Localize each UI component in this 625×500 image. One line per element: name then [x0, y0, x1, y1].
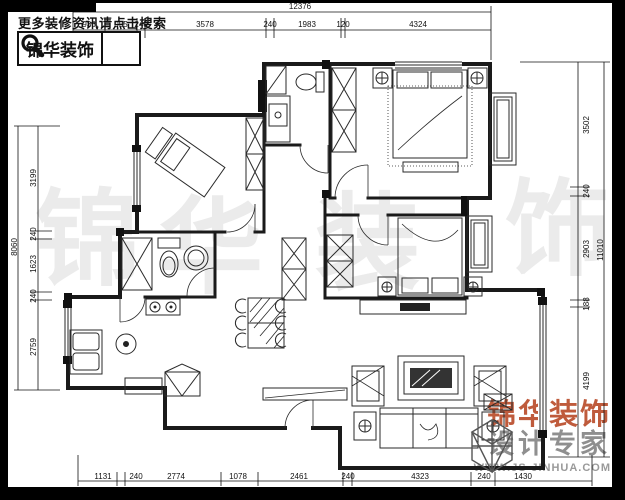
dim-bottom-seg: 1078 — [229, 472, 247, 481]
dim-left-seg: 1623 — [29, 255, 38, 273]
bathroom-left-fixtures — [122, 238, 208, 290]
search-icon[interactable] — [103, 33, 139, 64]
dim-left-seg: 3199 — [29, 169, 38, 187]
dim-top-total: 12376 — [289, 2, 312, 11]
dim-bottom-seg: 240 — [129, 472, 143, 481]
dim-right-seg: 4199 — [582, 372, 591, 390]
dim-right-seg: 2903 — [582, 240, 591, 258]
dim-right-seg: 188 — [582, 297, 591, 311]
dim-top-seg: 240 — [263, 20, 277, 29]
bay-window-top — [490, 93, 516, 165]
bedroom-middle-furniture — [327, 218, 482, 296]
brand-search-box[interactable]: 锦华装饰 — [17, 31, 141, 66]
dim-bottom-seg: 240 — [477, 472, 491, 481]
dimension-right: 11010 3502 240 2903 188 4199 — [520, 62, 610, 457]
dim-left-seg: 240 — [29, 289, 38, 303]
dim-bottom-seg: 2774 — [167, 472, 185, 481]
dim-bottom-seg: 1131 — [94, 472, 112, 481]
dim-bottom-seg: 4323 — [411, 472, 429, 481]
dim-right-seg: 3502 — [582, 116, 591, 134]
dining-set — [235, 298, 286, 348]
dim-top-seg: 120 — [336, 20, 350, 29]
interior-walls — [120, 64, 467, 298]
dim-top-seg: 3578 — [196, 20, 214, 29]
scanned-floorplan-page: 锦 华 装 饰 锦华装饰 设计专家 WWW.JS-JINHUA.COM 1237… — [0, 0, 625, 500]
dim-bottom-seg: 1430 — [514, 472, 532, 481]
promo-text: 更多装修资讯请点击搜索 — [18, 13, 167, 32]
dim-right-seg: 240 — [582, 184, 591, 198]
dimension-left: 8060 3199 240 1623 240 2759 — [10, 126, 60, 390]
floor-plan-drawing: 12376 936 955 240 3578 240 1983 120 4324… — [0, 0, 625, 500]
dim-top-seg: 4324 — [409, 20, 427, 29]
dim-left-total: 8060 — [10, 238, 19, 256]
axon-cube — [472, 420, 512, 472]
dim-bottom-seg: 240 — [341, 472, 355, 481]
scan-border-bottom — [0, 487, 625, 500]
dim-top-seg: 1983 — [298, 20, 316, 29]
scan-border-right — [612, 0, 625, 500]
bedroom-topleft-furniture — [144, 118, 264, 197]
dim-right-total: 11010 — [596, 239, 605, 261]
dim-left-seg: 2759 — [29, 338, 38, 356]
dim-bottom-seg: 2461 — [290, 472, 308, 481]
bathroom-top-fixtures — [266, 66, 324, 142]
kitchen-fixtures — [70, 299, 200, 396]
scan-border-left — [0, 0, 8, 500]
bedroom-master-furniture — [332, 68, 487, 172]
dim-left-seg: 240 — [29, 227, 38, 241]
scan-border-corner — [0, 0, 96, 12]
corridor-cabinet — [282, 238, 306, 300]
bay-window-middle — [467, 216, 492, 272]
living-room-furniture — [263, 300, 512, 448]
